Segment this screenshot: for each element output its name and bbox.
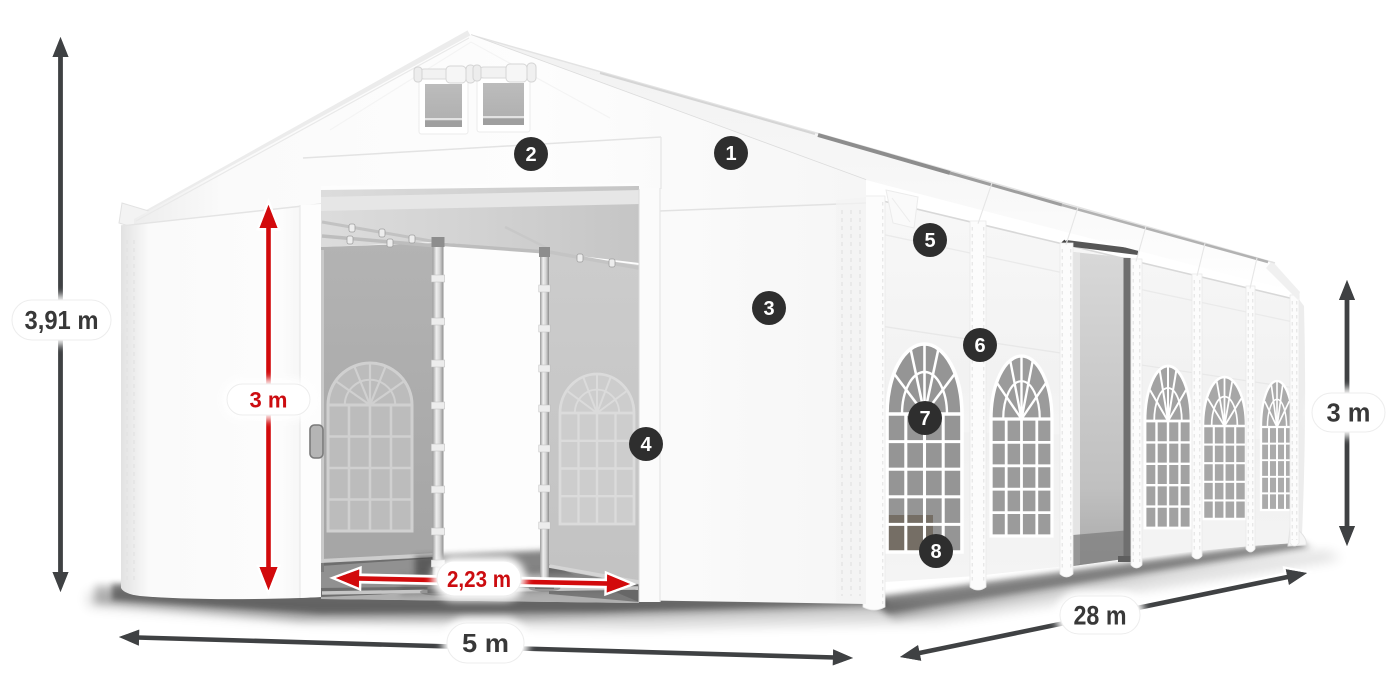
svg-text:2: 2 bbox=[525, 144, 536, 166]
svg-text:7: 7 bbox=[919, 408, 930, 430]
svg-text:3 m: 3 m bbox=[1327, 400, 1371, 428]
svg-text:5: 5 bbox=[924, 230, 935, 252]
svg-text:3: 3 bbox=[763, 298, 774, 320]
svg-text:1: 1 bbox=[725, 143, 736, 165]
svg-text:4: 4 bbox=[640, 434, 652, 456]
svg-text:3,91 m: 3,91 m bbox=[25, 305, 99, 335]
svg-text:2,23 m: 2,23 m bbox=[447, 566, 511, 592]
svg-text:5 m: 5 m bbox=[462, 628, 509, 658]
svg-text:28 m: 28 m bbox=[1074, 600, 1127, 630]
svg-text:8: 8 bbox=[930, 541, 941, 563]
svg-text:6: 6 bbox=[974, 335, 985, 357]
svg-text:3 m: 3 m bbox=[250, 387, 288, 412]
